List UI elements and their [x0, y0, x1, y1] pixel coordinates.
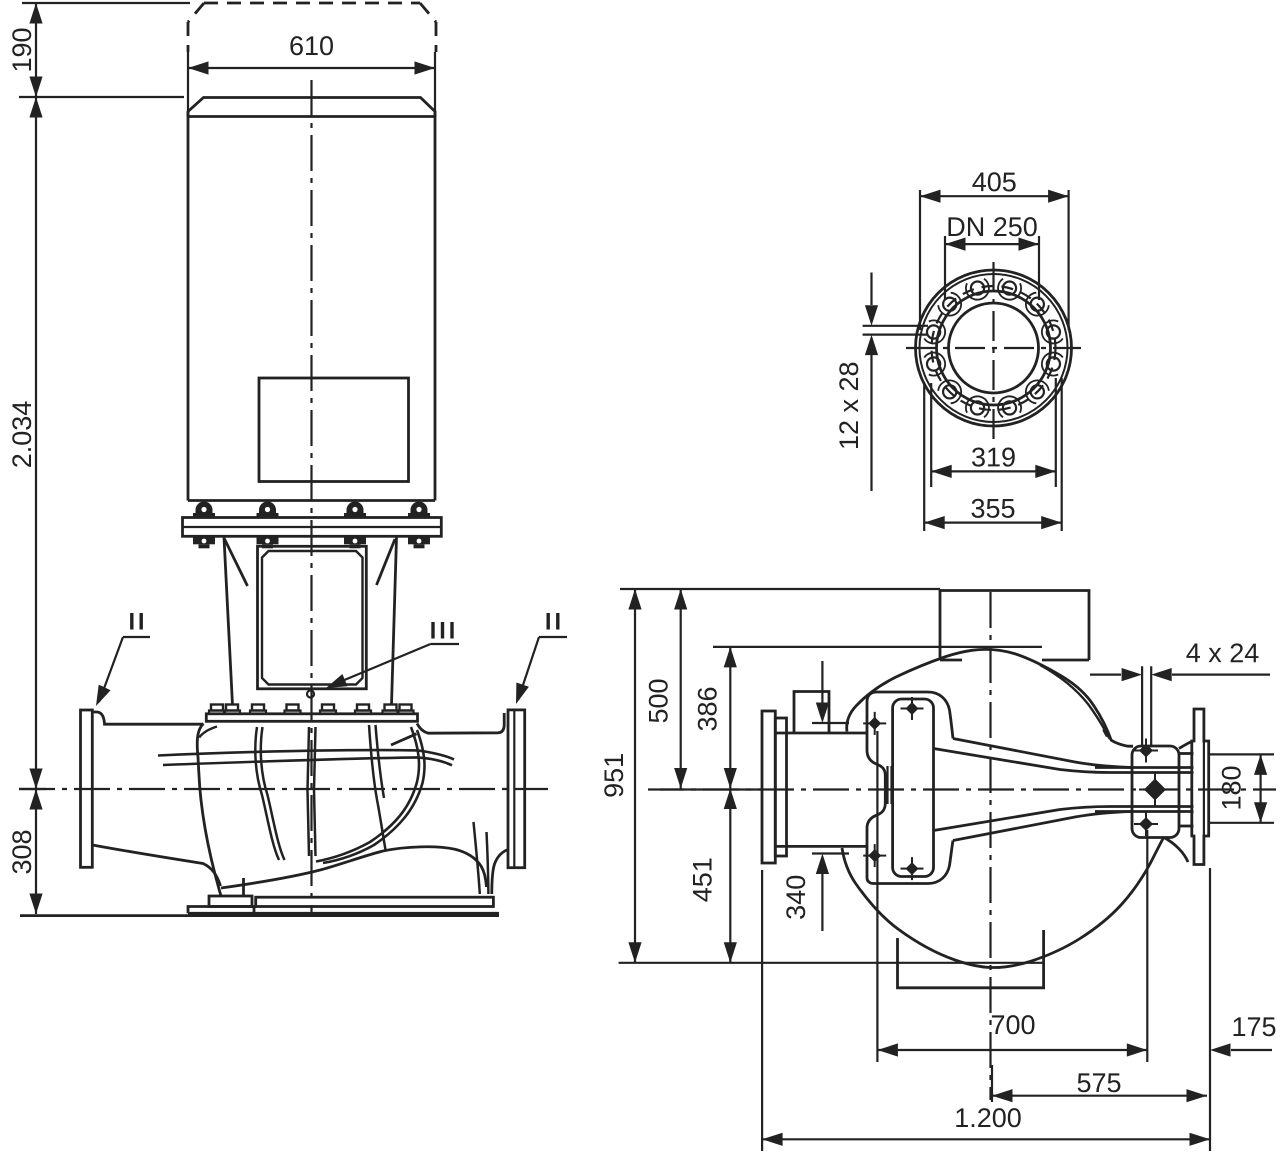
svg-text:DN 250: DN 250: [946, 212, 1038, 242]
svg-text:2.034: 2.034: [7, 401, 37, 469]
svg-text:700: 700: [990, 1010, 1035, 1040]
svg-text:319: 319: [971, 442, 1016, 472]
svg-text:175: 175: [1231, 1012, 1276, 1042]
svg-text:308: 308: [7, 829, 37, 874]
svg-text:355: 355: [970, 494, 1015, 524]
svg-text:12 x 28: 12 x 28: [834, 361, 864, 450]
svg-text:1.200: 1.200: [954, 1103, 1022, 1133]
svg-text:951: 951: [599, 753, 629, 798]
svg-text:500: 500: [644, 678, 674, 723]
svg-text:386: 386: [693, 686, 723, 731]
svg-text:340: 340: [781, 875, 811, 920]
svg-text:451: 451: [687, 857, 717, 902]
svg-text:180: 180: [1217, 765, 1247, 810]
svg-text:610: 610: [289, 31, 334, 61]
svg-text:190: 190: [7, 27, 37, 72]
svg-text:405: 405: [972, 167, 1017, 197]
svg-text:4 x 24: 4 x 24: [1186, 638, 1260, 668]
svg-text:575: 575: [1076, 1068, 1121, 1098]
